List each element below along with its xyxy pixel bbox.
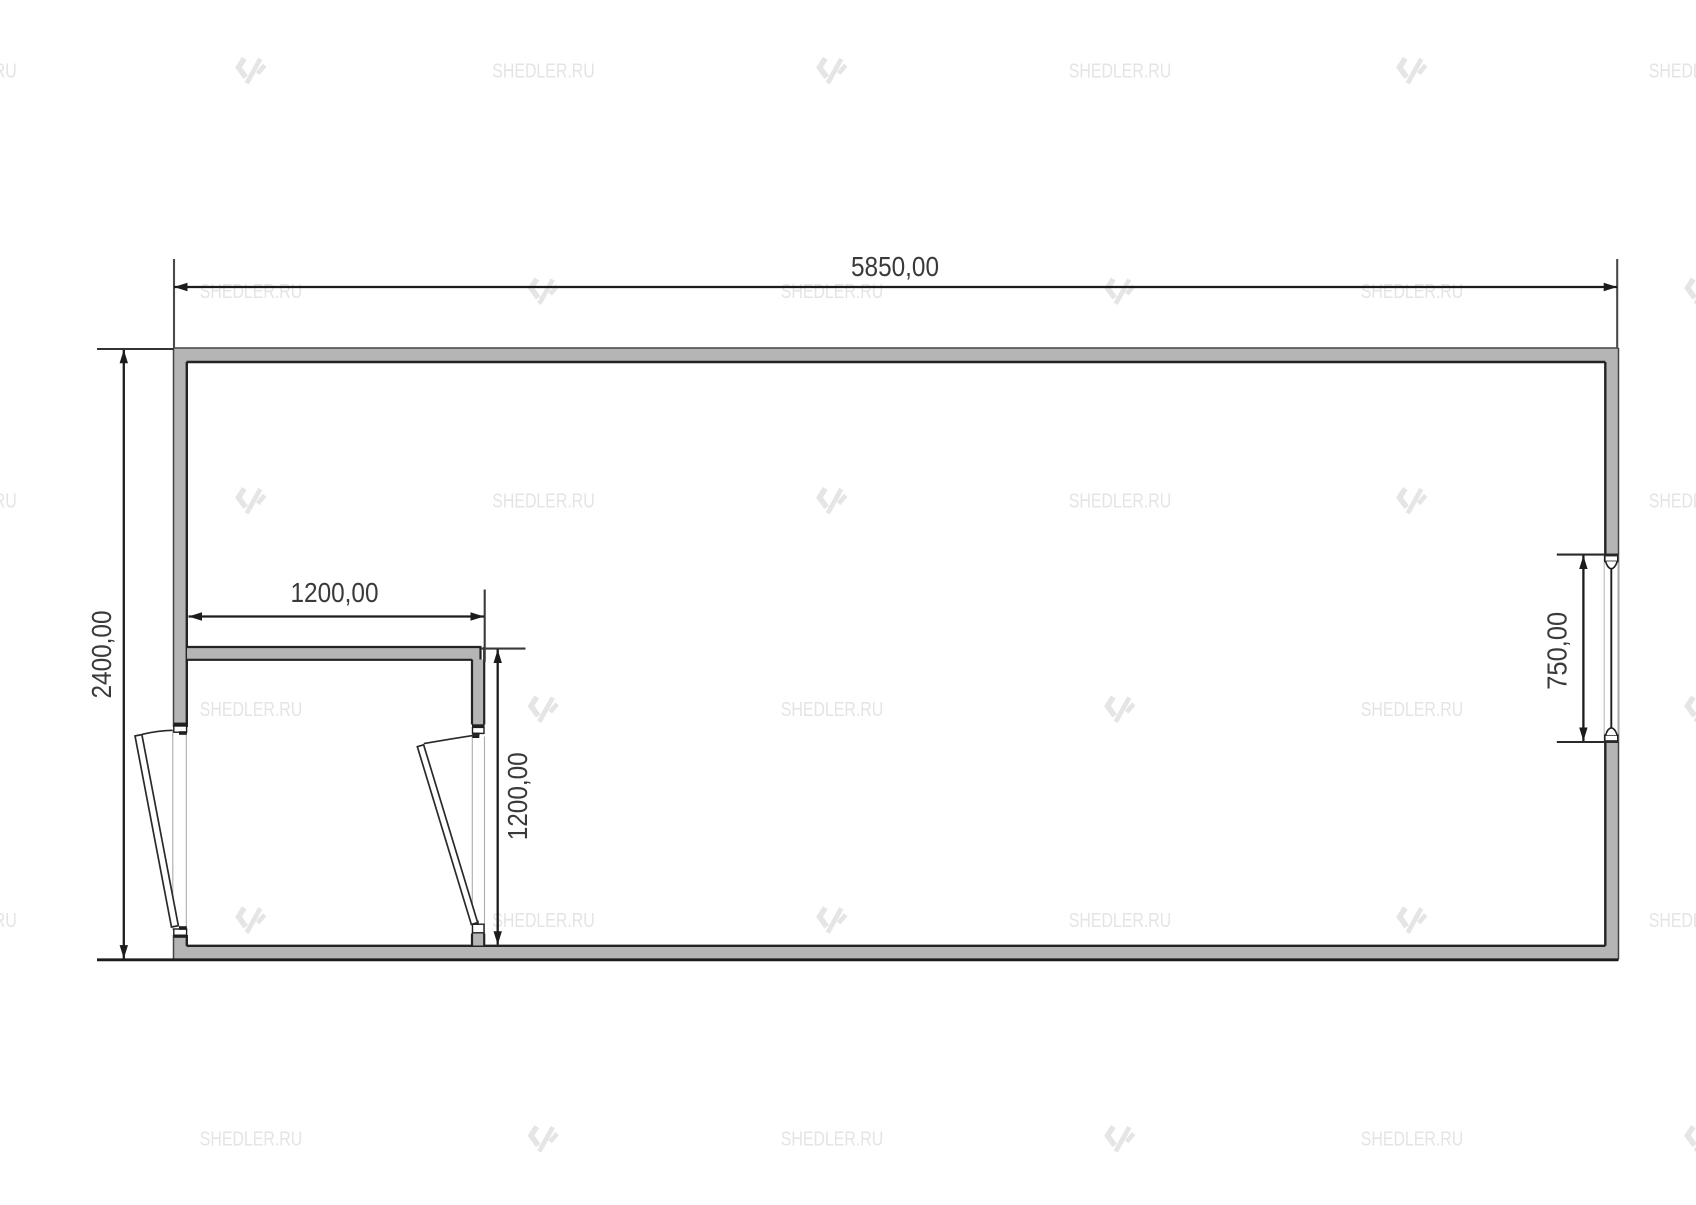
svg-text:1200,00: 1200,00 bbox=[291, 577, 379, 608]
svg-text:5850,00: 5850,00 bbox=[851, 251, 939, 282]
svg-text:2400,00: 2400,00 bbox=[86, 611, 117, 699]
svg-text:750,00: 750,00 bbox=[1542, 612, 1573, 690]
svg-text:1200,00: 1200,00 bbox=[502, 752, 533, 840]
